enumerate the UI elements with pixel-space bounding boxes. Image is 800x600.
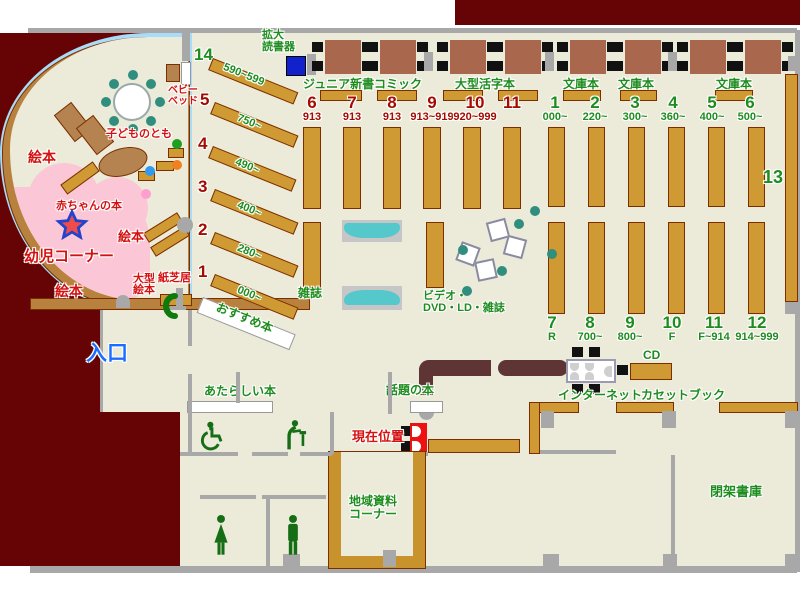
bookshelf: [548, 222, 565, 314]
internet-chair: [589, 347, 600, 357]
kamishibai-label: 紙芝居: [158, 272, 191, 284]
pillar: [545, 52, 554, 71]
wall: [671, 455, 675, 567]
chair-dot: [109, 116, 119, 126]
booth-chair: [497, 266, 507, 276]
star-icon: [55, 209, 89, 243]
wall: [252, 452, 288, 456]
bookshelf: [748, 222, 765, 314]
right-number: 4360~: [661, 94, 686, 124]
shelf: [428, 439, 520, 453]
yoji-corner-label: 幼児コーナー: [24, 249, 114, 266]
counter: [498, 360, 568, 376]
bookshelf-13: [785, 74, 798, 302]
pillar: [424, 52, 433, 71]
stool-green: [172, 139, 182, 149]
female-icon: [210, 514, 232, 558]
shelf-no: 2: [198, 221, 207, 240]
mid-number: 6913: [303, 94, 321, 124]
reading-table: [690, 40, 726, 74]
reading-table: [325, 40, 361, 74]
closed-stacks-label: 閉架書庫: [710, 485, 762, 499]
right-number: 3300~: [623, 94, 648, 124]
pillar: [383, 550, 396, 567]
mid-number: 9913~919: [410, 94, 453, 124]
bookshelf: [668, 222, 685, 314]
internet-label: インターネット: [558, 389, 642, 402]
internet-chair: [617, 365, 628, 375]
drinking-fountain-icon: [278, 418, 308, 452]
av-booth: [474, 258, 498, 282]
bookshelf: [628, 222, 645, 314]
wall: [388, 372, 392, 414]
magazine-rack: [344, 290, 400, 305]
step-block: [168, 148, 184, 158]
wall-pillar: [116, 295, 130, 308]
stool-pink: [141, 189, 151, 199]
local-docs-label: 地域資料 コーナー: [349, 495, 397, 521]
pillar: [785, 554, 798, 567]
chair-dot: [101, 97, 111, 107]
baby-bed-shelf: [166, 64, 180, 82]
reading-table: [450, 40, 486, 74]
kodomo-no-tomo-label: 子どものとも: [106, 128, 172, 140]
wall: [540, 450, 616, 454]
bookshelf: [588, 127, 605, 207]
magazine-rack: [344, 223, 400, 238]
shelf-no: 3: [198, 178, 207, 197]
bookshelf: [303, 127, 321, 209]
phone-icon: [160, 291, 180, 321]
bookshelf: [383, 127, 401, 209]
ogata-ehon-label: 大型 絵本: [133, 274, 155, 296]
ehon-top-label: 絵本: [28, 150, 56, 165]
wall: [330, 412, 334, 454]
shelf-no: 1: [198, 263, 207, 282]
mid-number: 7913: [343, 94, 361, 124]
male-icon: [282, 514, 304, 558]
cd-label: CD: [643, 349, 660, 362]
wall: [188, 310, 192, 346]
chair-dot: [155, 97, 165, 107]
shelf-no: 5: [200, 91, 209, 110]
magazine-shelf: [303, 222, 321, 288]
round-pillar: [177, 217, 193, 233]
booth-chair: [547, 249, 557, 259]
bookshelf: [668, 127, 685, 207]
cd-shelf: [630, 363, 672, 380]
stool-orange: [172, 160, 182, 170]
ehon-mid-label: 絵本: [118, 230, 144, 244]
new-books-label: あたらしい本: [204, 385, 276, 398]
pillar: [662, 411, 676, 428]
you-are-here-marker: [410, 423, 427, 455]
bottom-number: 7R: [547, 314, 556, 344]
pillar: [785, 302, 800, 314]
topic-books-shelf: [410, 401, 443, 413]
bookshelf: [343, 127, 361, 209]
bookshelf: [708, 222, 725, 314]
stool-blue: [145, 166, 155, 176]
mid-number: 10920~999: [453, 94, 496, 124]
chair-dot: [109, 79, 119, 89]
chair-dot: [128, 70, 138, 80]
pillar: [541, 411, 554, 428]
wall: [266, 495, 270, 567]
bookshelf: [463, 127, 481, 209]
pillar: [543, 554, 559, 567]
topic-books-label: 話題の本: [386, 384, 434, 397]
bottom-number: 11F~914: [698, 314, 730, 344]
bookshelf: [503, 127, 521, 209]
bottom-number: 8700~: [578, 314, 603, 344]
wall: [262, 495, 326, 499]
wall: [180, 452, 238, 456]
booth-chair: [458, 245, 468, 255]
chair-dot: [146, 116, 156, 126]
right-number: 1000~: [543, 94, 568, 124]
bookshelf: [628, 127, 645, 207]
pillar: [788, 56, 797, 71]
wall: [200, 495, 256, 499]
bottom-number: 10F: [663, 314, 682, 344]
wall-shelf: [529, 402, 540, 454]
video-shelf: [426, 222, 444, 288]
magazine-label: 雑誌: [298, 287, 322, 300]
reader-label: 拡大 読書器: [262, 30, 295, 53]
right-number: 2220~: [583, 94, 608, 124]
reader-device: [286, 56, 306, 76]
pillar: [663, 554, 677, 567]
round-table: [113, 83, 151, 121]
booth-chair: [530, 206, 540, 216]
right-number: 5400~: [700, 94, 725, 124]
mid-number: 11: [503, 94, 521, 111]
bookshelf: [423, 127, 441, 209]
internet-table: [566, 359, 616, 383]
reading-table: [380, 40, 416, 74]
bottom-number: 12914~999: [735, 314, 778, 344]
pillar: [668, 52, 677, 71]
reading-table: [745, 40, 781, 74]
bookshelf: [548, 127, 565, 207]
reading-table: [570, 40, 606, 74]
current-location-label: 現在位置: [352, 430, 404, 444]
wall-stub-top: [182, 33, 190, 61]
baby-bed-label: ベビー ベッド: [168, 85, 198, 107]
chair-dot: [146, 79, 156, 89]
wall: [188, 374, 192, 454]
reading-table: [505, 40, 541, 74]
bookshelf: [588, 222, 605, 314]
wall: [300, 452, 332, 456]
outside-band-top: [455, 0, 800, 25]
booth-chair: [462, 286, 472, 296]
right-number: 6500~: [738, 94, 763, 124]
wheelchair-icon: [197, 420, 229, 452]
new-books-shelf: [187, 401, 273, 413]
reading-table: [625, 40, 661, 74]
library-floor-map: 入口 絵本 子どものとも ベビー ベッド 赤ちゃんの本 絵本 幼児コーナー 絵本…: [0, 0, 800, 600]
ehon-bottom-label: 絵本: [55, 284, 83, 299]
baby-bed: [181, 62, 191, 85]
wall: [236, 372, 240, 403]
shelf-no: 4: [198, 135, 207, 154]
shelf13-label: 13: [763, 168, 783, 188]
mid-number: 8913: [383, 94, 401, 124]
internet-chair: [572, 347, 583, 357]
bottom-number: 9800~: [618, 314, 643, 344]
bookshelf: [708, 127, 725, 207]
booth-chair: [514, 219, 524, 229]
entrance-label: 入口: [86, 342, 128, 365]
cassette-label: カセットブック: [641, 389, 725, 402]
pillar: [785, 411, 798, 428]
